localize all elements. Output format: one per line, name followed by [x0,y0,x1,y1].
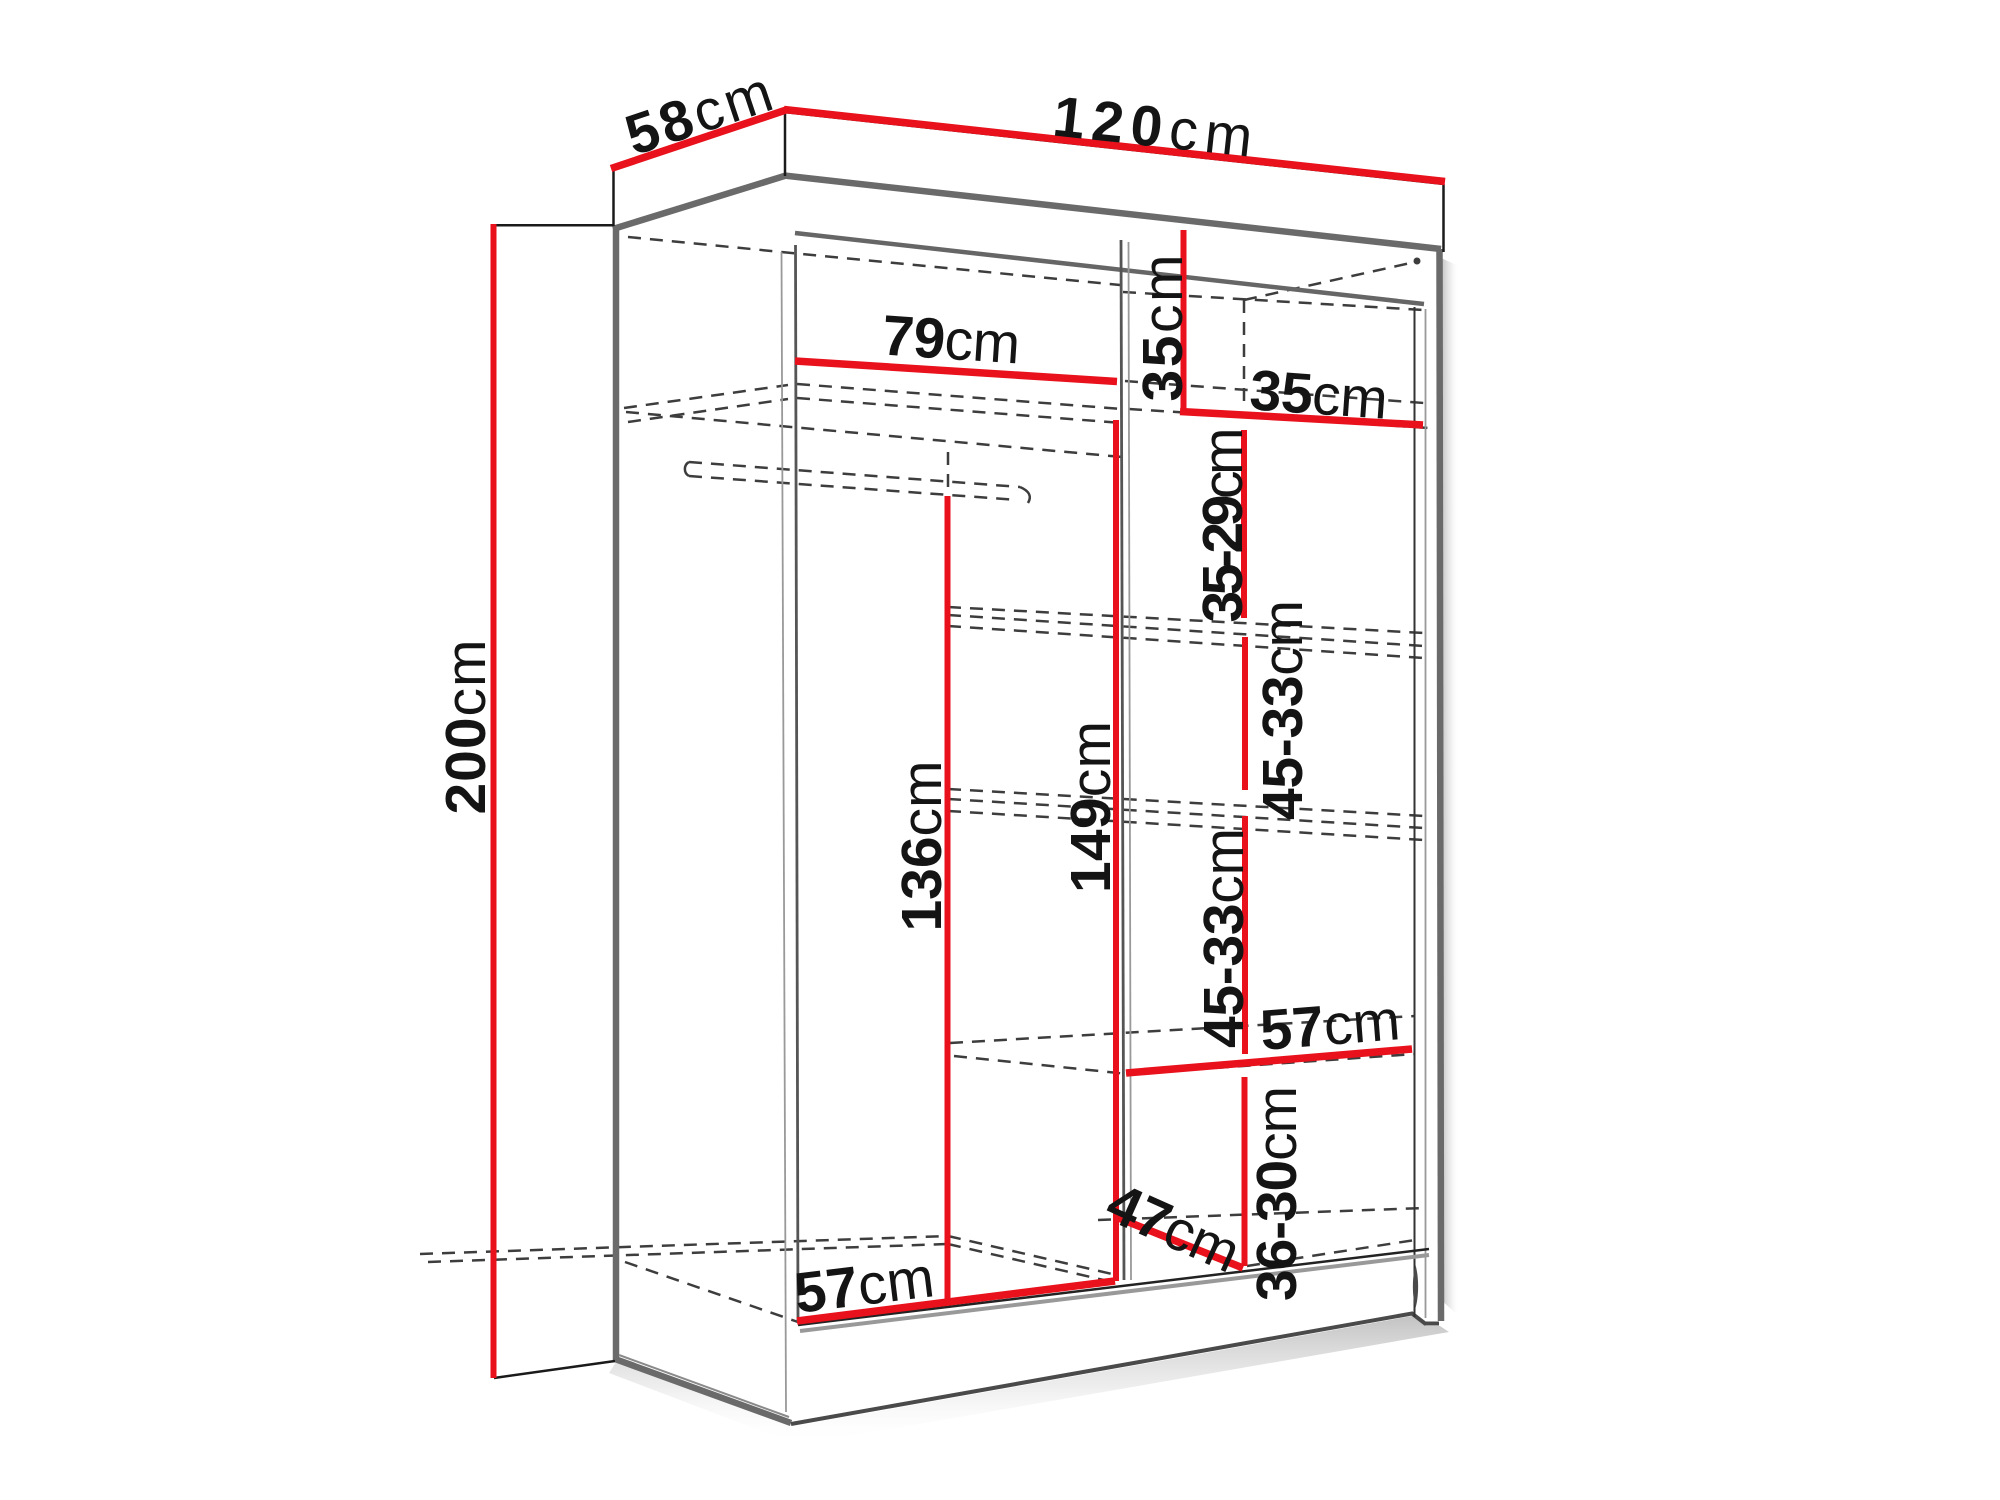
svg-text:35cm: 35cm [1248,358,1390,431]
svg-text:200cm: 200cm [434,640,498,815]
svg-text:35cm: 35cm [1131,255,1195,402]
svg-text:45-33cm: 45-33cm [1192,828,1256,1048]
svg-text:79cm: 79cm [880,304,1022,377]
svg-text:45-33cm: 45-33cm [1251,600,1315,820]
svg-text:149cm: 149cm [1059,721,1123,893]
svg-text:36-30cm: 36-30cm [1245,1086,1309,1301]
svg-text:35-29cm: 35-29cm [1191,428,1255,623]
svg-text:57cm: 57cm [1258,988,1403,1063]
svg-text:136cm: 136cm [890,761,954,932]
